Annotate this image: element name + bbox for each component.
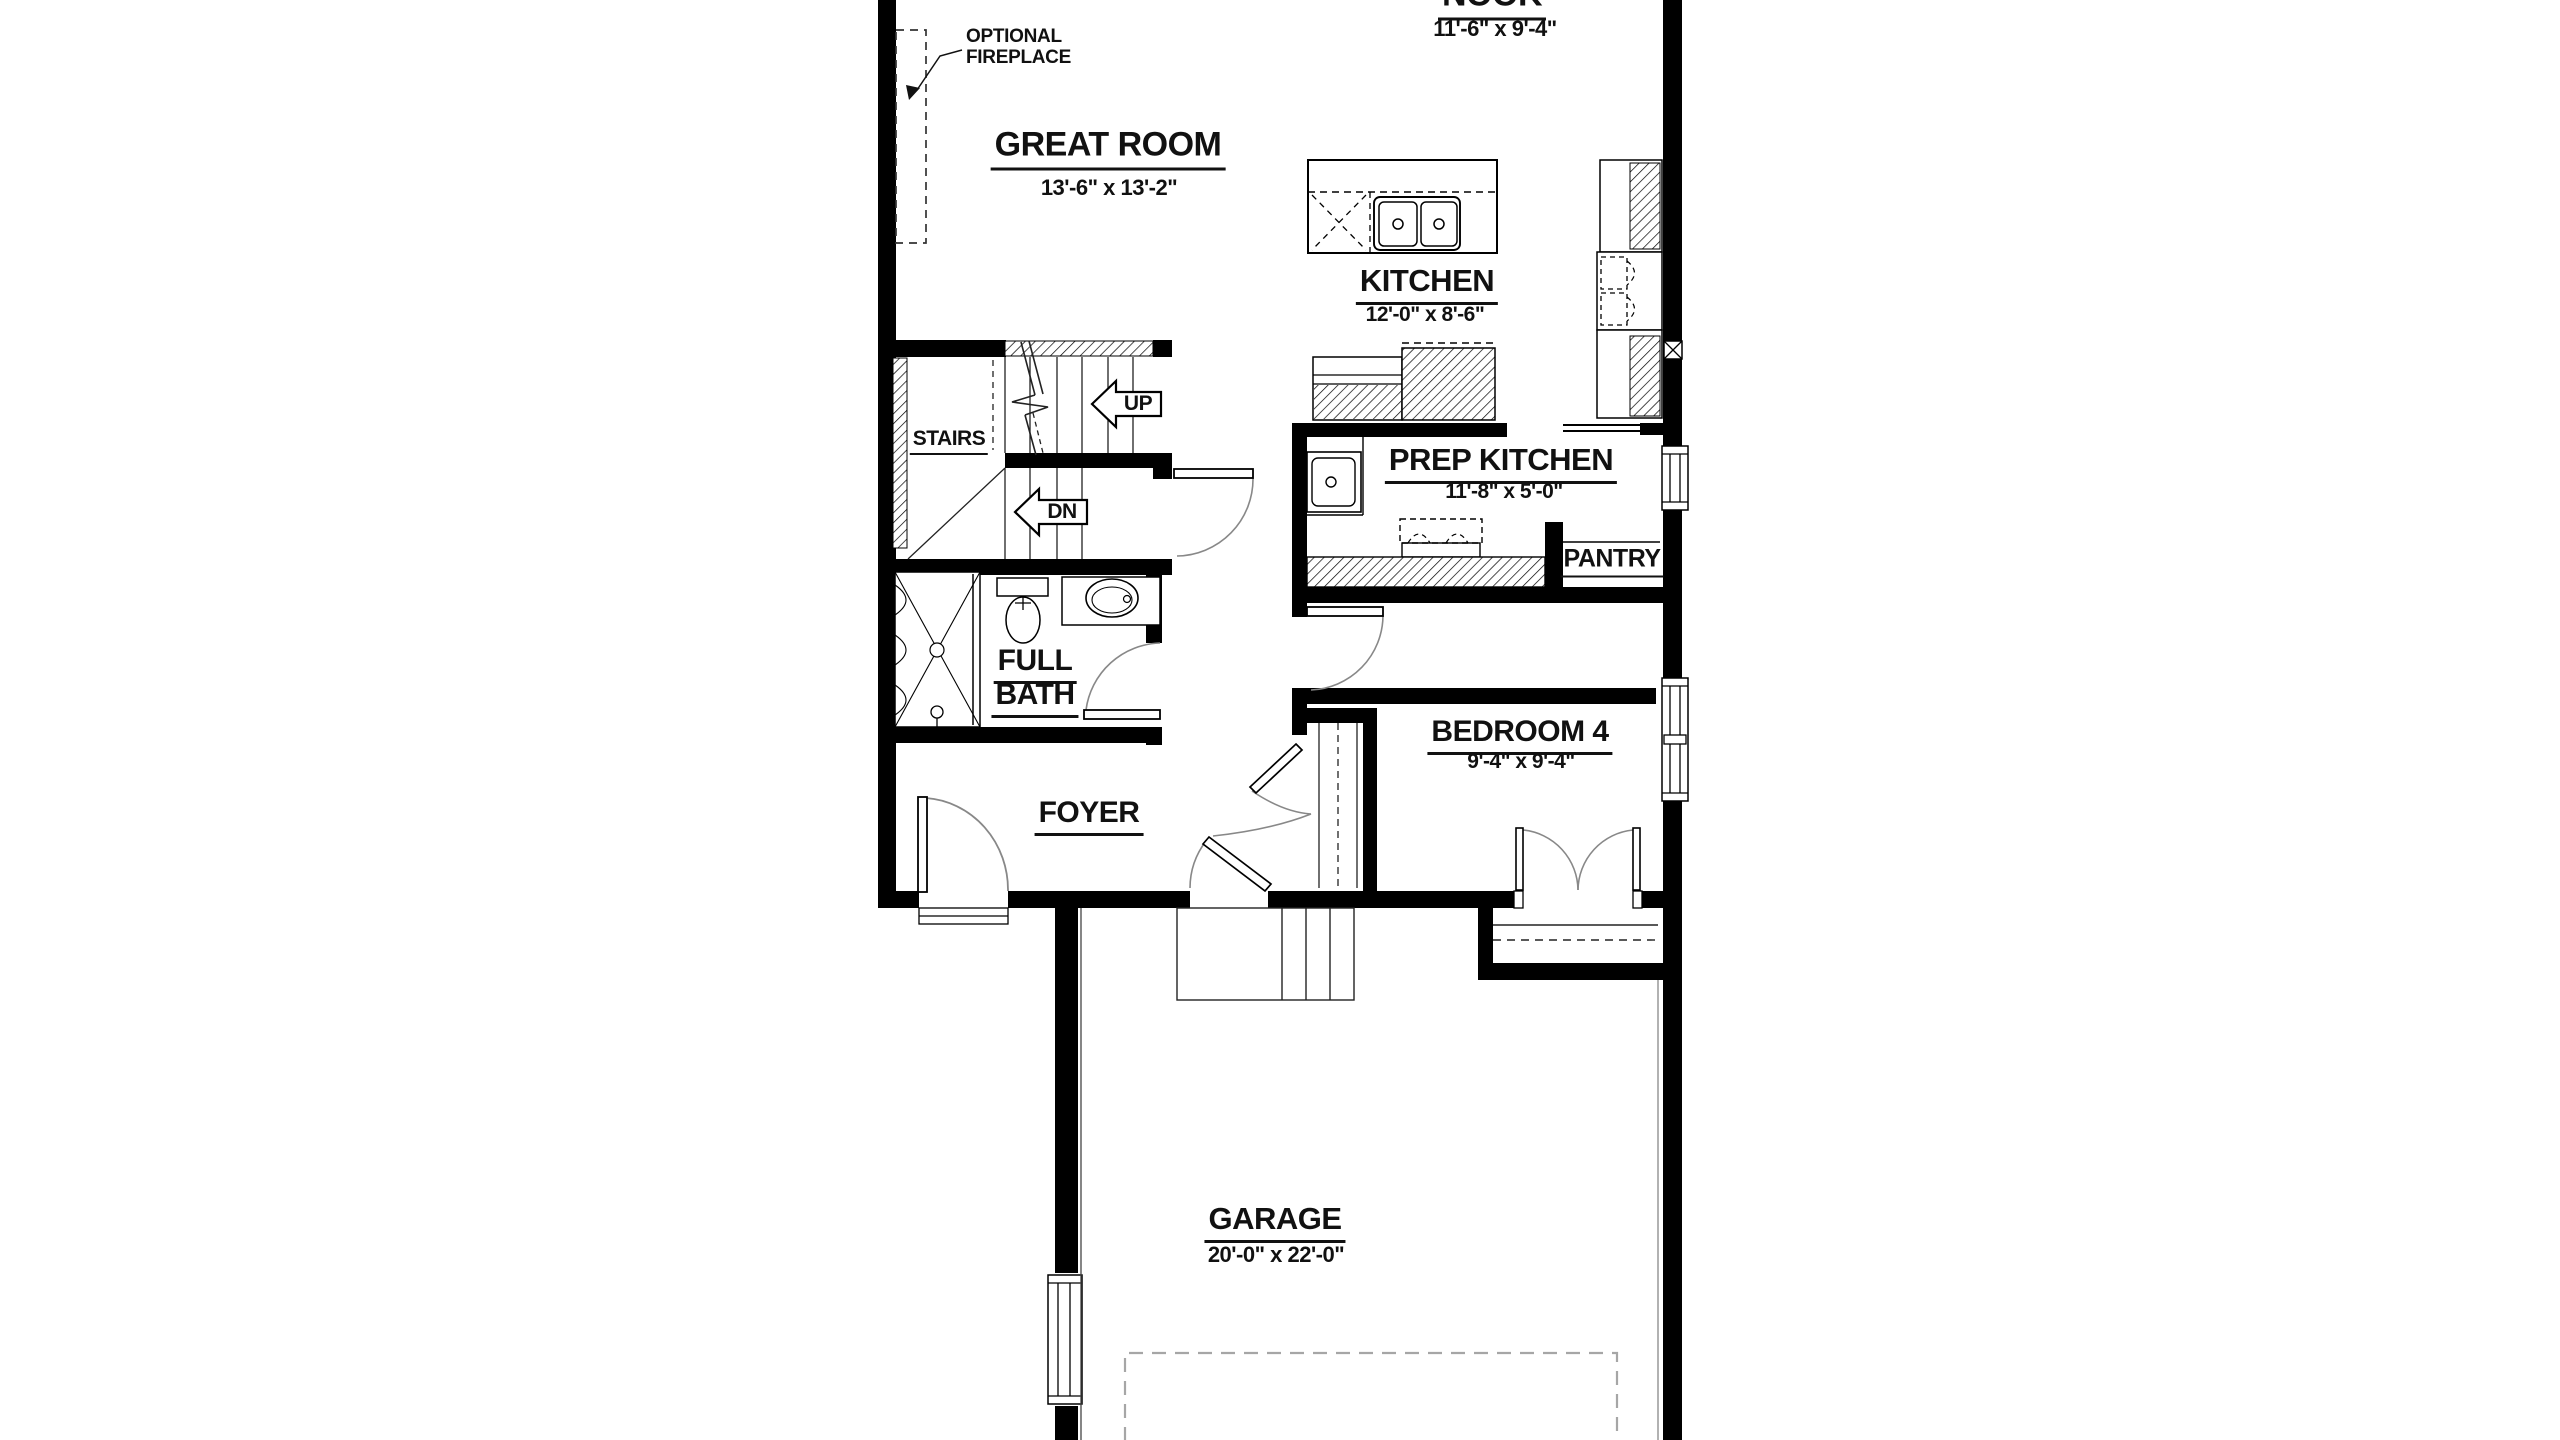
wall-meter-symbol [1664, 341, 1682, 359]
garage-steps [1177, 908, 1354, 1000]
parking-space-outline [1125, 1353, 1617, 1440]
room-label-great-room: GREAT ROOM [991, 126, 1226, 171]
bath-door-leaf [1084, 710, 1160, 719]
kitchen-appliance-wall [1597, 160, 1662, 418]
prep-sink [1307, 452, 1361, 512]
front-door-leaf [918, 797, 927, 892]
room-dims-kitchen: 12'-0" x 8'-6" [1366, 303, 1485, 327]
kitchen-base-cabinets [1313, 343, 1495, 420]
room-label-garage: GARAGE [1204, 1201, 1345, 1243]
room-label-stairs: STAIRS [910, 427, 988, 455]
closet-door-right-leaf [1633, 828, 1640, 890]
stair-up-label: UP [1124, 392, 1152, 416]
fireplace-note: OPTIONAL FIREPLACE [966, 26, 1071, 68]
room-label-foyer: FOYER [1035, 796, 1144, 836]
garage-entry-door-leaf [1203, 837, 1271, 891]
future-cooktop [1400, 519, 1482, 557]
closet-door-left-leaf [1516, 828, 1523, 890]
shower [895, 572, 980, 727]
hall-door-leaf [1174, 469, 1253, 478]
stair-down-label: DN [1047, 500, 1076, 524]
room-label-prep-kitchen: PREP KITCHEN [1385, 442, 1617, 484]
prep-hall-door-leaf [1307, 607, 1383, 616]
room-dims-great-room: 13'-6" x 13'-2" [1041, 175, 1177, 201]
room-label-bedroom4: BEDROOM 4 [1427, 715, 1612, 755]
garage-side-window [1046, 1273, 1086, 1406]
bedroom4-door-leaf [1250, 744, 1302, 793]
room-label-pantry: PANTRY [1561, 545, 1664, 578]
bath-sink [1062, 577, 1160, 625]
optional-fireplace [896, 30, 962, 243]
kitchen-island [1308, 160, 1497, 253]
bedroom4-window [1656, 678, 1690, 801]
prep-base-cabinets [1307, 557, 1545, 587]
room-dims-garage: 20'-0" x 22'-0" [1208, 1242, 1344, 1268]
garage-elements [1081, 908, 1658, 1440]
room-dims-prep-kitchen: 11'-8" x 5'-0" [1445, 480, 1562, 504]
room-label-full-bath-2: BATH [991, 678, 1078, 718]
room-label-kitchen: KITCHEN [1356, 263, 1498, 305]
floor-plan-page: NOOK 11'-6" x 9'-4" GREAT ROOM 13'-6" x … [0, 0, 2560, 1440]
room-dims-bedroom4: 9'-4" x 9'-4" [1467, 750, 1574, 774]
room-dims-nook: 11'-6" x 9'-4" [1433, 16, 1556, 42]
prep-kitchen-window [1656, 446, 1690, 510]
toilet [997, 578, 1048, 643]
